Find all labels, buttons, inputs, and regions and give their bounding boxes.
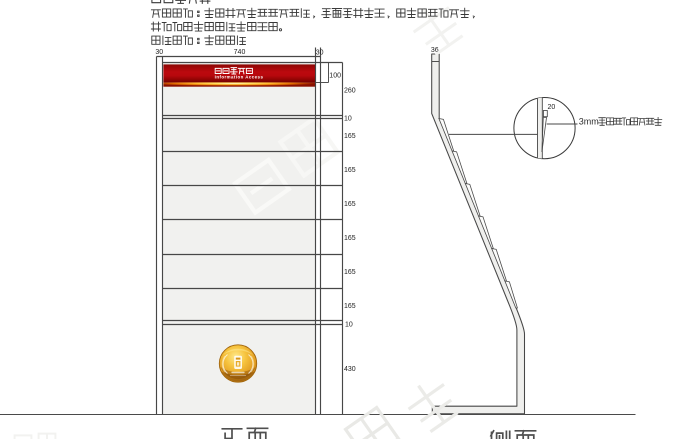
svg-text:20: 20 — [548, 104, 556, 111]
svg-text:10: 10 — [344, 116, 352, 123]
svg-text:260: 260 — [344, 88, 356, 95]
svg-text:10: 10 — [345, 322, 353, 329]
svg-text:30: 30 — [316, 50, 324, 57]
svg-text:Information Access: Information Access — [215, 75, 264, 80]
svg-text:165: 165 — [344, 167, 356, 174]
svg-text:30: 30 — [155, 49, 163, 56]
svg-text:3mm: 3mm — [579, 117, 599, 127]
svg-text:165: 165 — [344, 269, 356, 276]
svg-text:165: 165 — [344, 133, 356, 140]
svg-text:740: 740 — [234, 49, 246, 56]
svg-text:165: 165 — [344, 235, 356, 242]
svg-text:165: 165 — [344, 303, 356, 310]
svg-text:100: 100 — [329, 73, 341, 80]
svg-text:165: 165 — [344, 201, 356, 208]
svg-text:430: 430 — [344, 366, 356, 373]
